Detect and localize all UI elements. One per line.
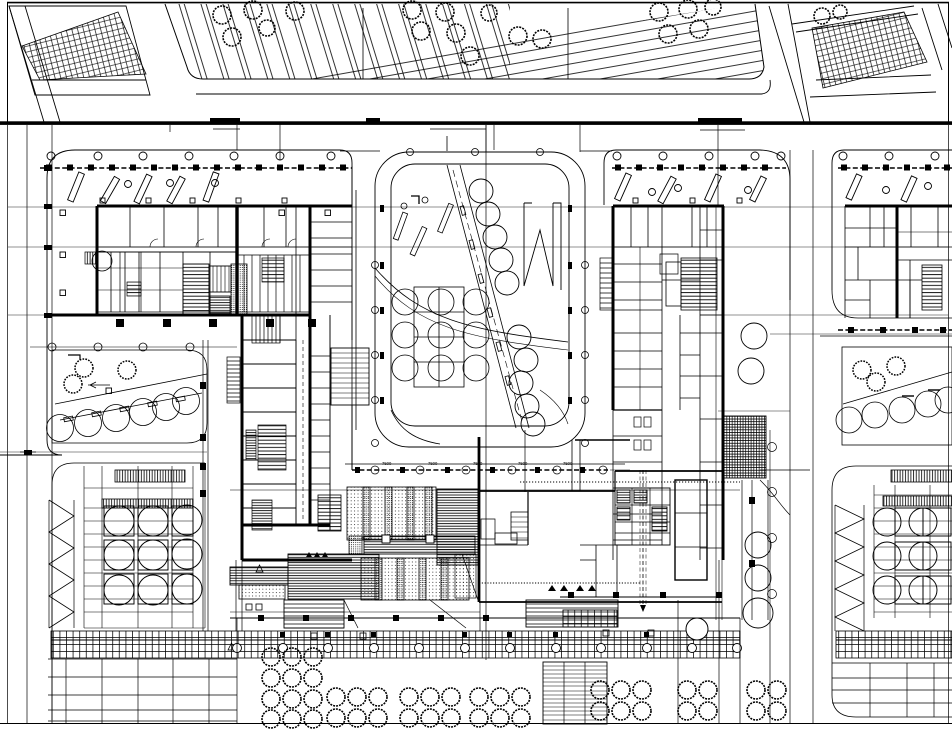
svg-text:7500: 7500 xyxy=(382,461,392,466)
svg-text:7500: 7500 xyxy=(563,461,573,466)
svg-text:7500: 7500 xyxy=(428,461,438,466)
svg-text:7500: 7500 xyxy=(518,461,528,466)
